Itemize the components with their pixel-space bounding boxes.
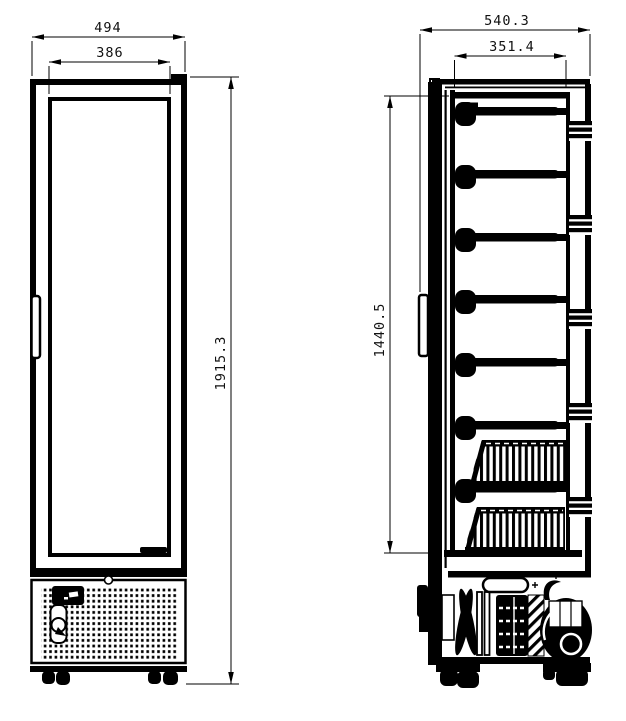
- wire-basket: [470, 440, 567, 488]
- door-handle-side: [419, 295, 428, 356]
- caster-foot: [42, 671, 55, 684]
- caster-foot: [440, 669, 458, 686]
- caster-foot: [163, 671, 178, 685]
- shelf: [455, 290, 567, 314]
- dim-label-interior-height: 1440.5: [372, 303, 388, 358]
- dim-label-interior-depth: 351.4: [489, 39, 535, 55]
- base-plate: [30, 666, 187, 672]
- door-side-profile: [428, 82, 442, 573]
- dim-arrow-icon: [578, 27, 590, 33]
- muffler: [483, 578, 528, 592]
- interior-ceiling: [450, 92, 570, 99]
- shelf: [455, 353, 567, 377]
- shelf: [455, 416, 567, 440]
- front-view: [30, 74, 187, 685]
- caster-foot: [56, 671, 70, 685]
- shelf: [455, 165, 567, 189]
- shelf: [455, 102, 567, 126]
- caster-foot: [556, 669, 588, 686]
- dim-arrow-icon: [32, 34, 44, 40]
- temperature-display-panel: [52, 586, 84, 605]
- front-feet: [30, 666, 187, 685]
- caster-foot: [457, 671, 479, 688]
- condenser-coil: [496, 595, 528, 656]
- dim-arrow-icon: [554, 53, 566, 59]
- side-view: [417, 78, 592, 688]
- interior-front-wall: [450, 90, 455, 553]
- base-frame: [430, 657, 590, 664]
- dim-label-overall-height: 1915.3: [213, 336, 229, 391]
- refrigerator-dimension-drawing: 494 386 1915.3 540.3: [0, 0, 626, 721]
- door-handle-front: [32, 296, 41, 358]
- dim-arrow-icon: [387, 96, 393, 108]
- technical-drawing-canvas: 494 386 1915.3 540.3: [0, 0, 626, 721]
- dim-overall-height: 1915.3: [186, 77, 239, 684]
- door-lock: [51, 605, 67, 643]
- caster-foot: [148, 671, 161, 684]
- dim-arrow-icon: [387, 541, 393, 553]
- dim-arrow-icon: [158, 59, 170, 65]
- dim-arrow-icon: [173, 34, 185, 40]
- dim-arrow-icon: [49, 59, 61, 65]
- dim-label-overall-width: 494: [94, 20, 121, 36]
- dim-label-overall-depth: 540.3: [484, 13, 530, 29]
- glass-door: [50, 99, 169, 555]
- compressor: [540, 580, 592, 662]
- compartment-deck: [448, 571, 591, 578]
- dim-arrow-icon: [420, 27, 432, 33]
- dim-arrow-icon: [228, 77, 234, 89]
- brand-badge: [140, 547, 167, 553]
- dim-arrow-icon: [228, 672, 234, 684]
- shelf: [455, 228, 567, 252]
- compressor-compartment: [417, 571, 592, 688]
- dim-arrow-icon: [455, 53, 467, 59]
- dim-label-door-width: 386: [96, 45, 123, 61]
- screw-icon: [105, 576, 113, 584]
- wire-basket: [465, 507, 565, 554]
